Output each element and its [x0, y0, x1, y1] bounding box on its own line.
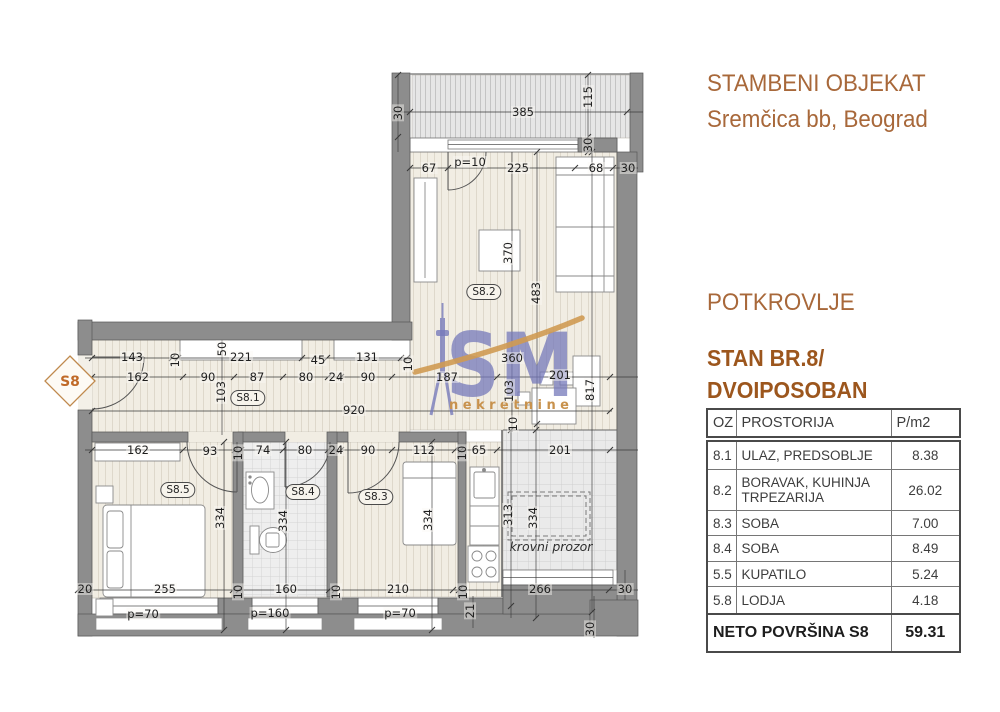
pillow: [107, 511, 123, 548]
loggia-floor: [503, 430, 617, 570]
table-row: 8.3 SOBA 7.00: [707, 511, 960, 536]
cell-room: KUPATILO: [736, 562, 891, 587]
col-header-oz: OZ: [707, 409, 736, 437]
cell-area: 8.38: [891, 441, 960, 470]
table-row: 5.8 LODJA 4.18: [707, 587, 960, 615]
cell-room: BORAVAK, KUHINJA TRPEZARIJA: [736, 470, 891, 511]
table-footer-row: NETO POVRŠINA S8 59.31: [707, 614, 960, 652]
nightstand: [96, 599, 113, 616]
table-header-row: OZ PROSTORIJA P/m2: [707, 409, 960, 437]
floor-heading: POTKROVLJE: [707, 289, 855, 317]
cell-area: 5.24: [891, 562, 960, 587]
cell-room: SOBA: [736, 511, 891, 536]
tv-cabinet: [414, 178, 437, 282]
cell-oz: 8.4: [707, 536, 736, 562]
unit-heading: STAN BR.8/ DVOIPOSOBAN: [707, 342, 867, 406]
stove: [468, 546, 499, 582]
cell-room: ULAZ, PREDSOBLJE: [736, 441, 891, 470]
floorplan-sheet: SM nekretnine 303851153067p=102256830370…: [0, 0, 1000, 712]
window-sills: [96, 618, 442, 630]
unit-type: DVOIPOSOBAN: [707, 374, 867, 406]
wardrobe: [95, 443, 180, 461]
col-header-room: PROSTORIJA: [736, 409, 891, 437]
fridge: [573, 356, 600, 406]
pillow: [107, 551, 123, 588]
table-row: 8.2 BORAVAK, KUHINJA TRPEZARIJA 26.02: [707, 470, 960, 511]
total-value: 59.31: [891, 614, 960, 652]
area-table: 8.1 ULAZ, PREDSOBLJE 8.38 8.2 BORAVAK, K…: [706, 440, 961, 653]
unit-tag: S8: [60, 374, 80, 390]
table: [479, 230, 520, 271]
table-row: 8.1 ULAZ, PREDSOBLJE 8.38: [707, 441, 960, 470]
balcony-floor: [412, 75, 630, 138]
unit-tag-diamond: S8: [43, 354, 97, 408]
table-row: 5.5 KUPATILO 5.24: [707, 562, 960, 587]
cell-oz: 8.3: [707, 511, 736, 536]
nightstand: [96, 486, 113, 503]
cell-oz: 5.5: [707, 562, 736, 587]
project-header: STAMBENI OBJEKAT Sremčica bb, Beograd: [707, 66, 928, 138]
project-address: Sremčica bb, Beograd: [707, 102, 928, 138]
cell-area: 26.02: [891, 470, 960, 511]
cell-area: 4.18: [891, 587, 960, 615]
col-header-area: P/m2: [891, 409, 960, 437]
area-table-header: OZ PROSTORIJA P/m2: [706, 408, 961, 438]
kitchen-counter: [470, 506, 499, 545]
total-label: NETO POVRŠINA S8: [707, 614, 891, 652]
toilet-tank: [250, 526, 259, 554]
cell-oz: 8.2: [707, 470, 736, 511]
cell-room: LODJA: [736, 587, 891, 615]
cell-oz: 8.1: [707, 441, 736, 470]
project-title: STAMBENI OBJEKAT: [707, 66, 928, 102]
unit-number: STAN BR.8/: [707, 342, 867, 374]
cell-room: SOBA: [736, 536, 891, 562]
table-row: 8.4 SOBA 8.49: [707, 536, 960, 562]
single-bed: [403, 462, 456, 545]
cell-area: 8.49: [891, 536, 960, 562]
sofa: [556, 157, 614, 292]
cell-oz: 5.8: [707, 587, 736, 615]
hall-closet: [180, 338, 302, 360]
cell-area: 7.00: [891, 511, 960, 536]
hall-closet: [334, 338, 410, 360]
